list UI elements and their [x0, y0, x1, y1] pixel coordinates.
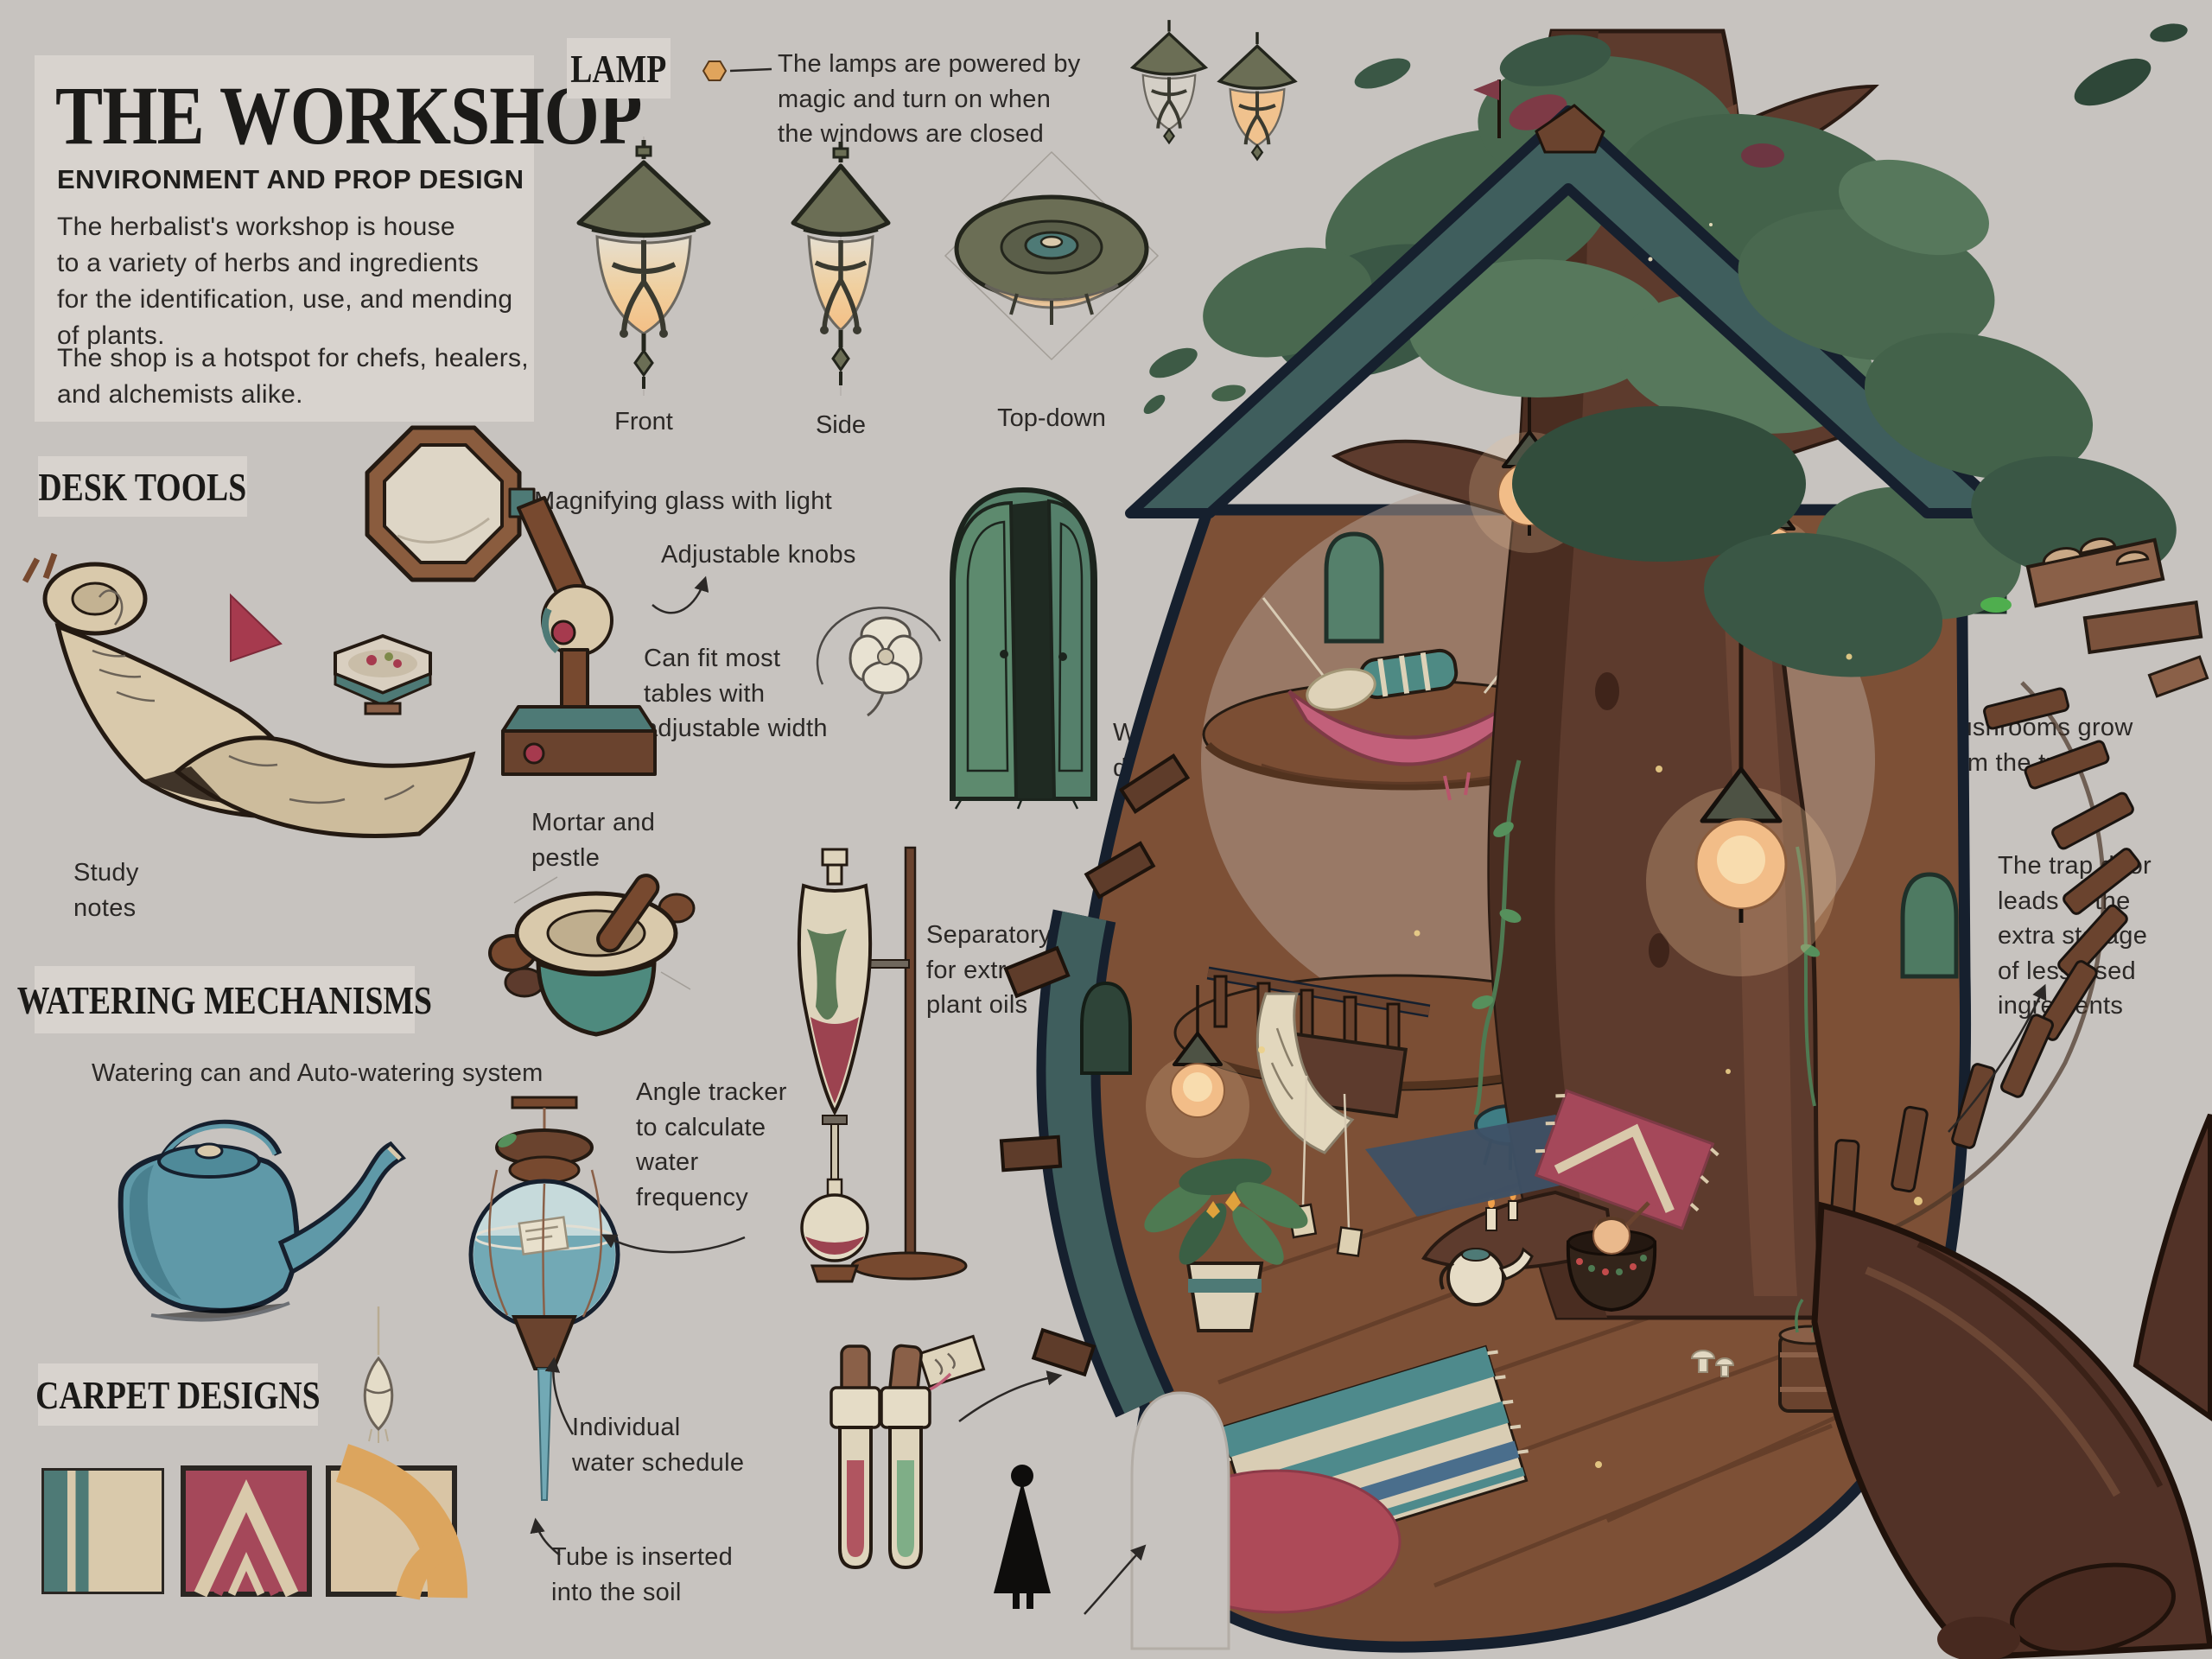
- tassel-sketch: [344, 1306, 413, 1445]
- lamp-side-sketch: [759, 137, 923, 396]
- auto-watering-sketch: [462, 1090, 661, 1531]
- intro-paragraph-2: The shop is a hotspot for chefs, healers…: [57, 340, 529, 413]
- watering-heading: WATERING MECHANISMS: [35, 966, 415, 1033]
- carpet-swatch-stripe: [41, 1468, 164, 1594]
- desk-tools-heading-label: DESK TOOLS: [39, 464, 247, 510]
- lamp-note-line: [730, 69, 772, 71]
- watering-subtitle: Watering can and Auto-watering system: [92, 1056, 543, 1091]
- mushroom-shelf: [2028, 536, 2208, 696]
- knob-flower-sketch: [829, 596, 942, 726]
- funnel-sketch: [778, 799, 985, 1318]
- carpet-swatch-chevron: [183, 1468, 309, 1594]
- title-panel: THE WORKSHOP ENVIRONMENT AND PROP DESIGN…: [35, 55, 534, 422]
- carpet-swatch-arches: [328, 1468, 454, 1594]
- carpet-heading-label: CARPET DESIGNS: [35, 1372, 320, 1418]
- carpet-heading: CARPET DESIGNS: [38, 1363, 318, 1426]
- mortar-sketch: [480, 851, 704, 1067]
- tube-label: Tube is inserted into the soil: [551, 1540, 733, 1610]
- page-title: THE WORKSHOP: [55, 67, 642, 163]
- treehouse-illustration: [1002, 0, 2212, 1659]
- study-notes-sketch: [13, 540, 497, 912]
- intro-paragraph-1: The herbalist's workshop is house to a v…: [57, 209, 512, 354]
- lamp-view-side: Side: [759, 411, 923, 440]
- lamp-note-icon: [703, 61, 726, 80]
- fit-label: Can fit most tables with adjustable widt…: [644, 641, 828, 747]
- watering-heading-label: WATERING MECHANISMS: [17, 977, 432, 1023]
- lamp-front-sketch: [557, 137, 730, 396]
- page-subtitle: ENVIRONMENT AND PROP DESIGN: [57, 164, 524, 195]
- lamp-section-heading: LAMP: [567, 38, 671, 99]
- test-tubes-sketch: [821, 1338, 1002, 1588]
- knobs-label: Adjustable knobs: [661, 537, 856, 573]
- lamp-heading-label: LAMP: [570, 46, 666, 92]
- watering-can-sketch: [69, 1089, 406, 1339]
- design-board: THE WORKSHOP ENVIRONMENT AND PROP DESIGN…: [0, 0, 2212, 1659]
- doorway: [1132, 1393, 1229, 1649]
- desk-tools-heading: DESK TOOLS: [38, 456, 247, 517]
